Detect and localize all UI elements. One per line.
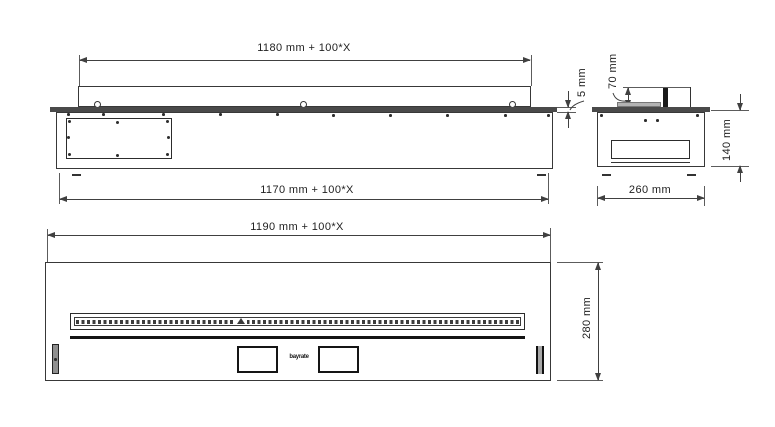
side-vent-right — [536, 346, 544, 374]
foot-mark — [687, 174, 696, 176]
burner-slot-perforation — [74, 317, 521, 326]
service-box-2 — [318, 346, 359, 373]
panel-screw — [166, 120, 169, 123]
dim-arrow-5mm-lower — [568, 112, 569, 128]
service-box-1 — [237, 346, 278, 373]
extension-line-70mm-top — [623, 87, 691, 88]
dim-line-280 — [598, 263, 599, 380]
center-notch-marker — [237, 318, 245, 324]
panel-screw — [116, 154, 119, 157]
front-edge-line — [70, 336, 525, 339]
end-opening — [611, 140, 690, 159]
extension-line-1180-right — [531, 55, 532, 86]
extension-line-140-bottom — [711, 166, 749, 167]
end-opening-lip — [611, 162, 690, 163]
burner-end-right-edge — [690, 87, 691, 107]
vent-stub — [663, 88, 668, 107]
screw-dot — [162, 113, 165, 116]
mounting-flange-end — [592, 107, 710, 112]
dim-arrow-5mm-upper — [568, 91, 569, 107]
screw-dot — [219, 113, 222, 116]
screw-dot — [67, 113, 70, 116]
screw-dot — [656, 119, 659, 122]
screw-dot — [547, 114, 550, 117]
screw-dot — [644, 119, 647, 122]
panel-screw — [68, 153, 71, 156]
foot-mark — [72, 174, 81, 176]
dim-label-70mm: 70 mm — [607, 48, 621, 94]
dim-label-140mm: 140 mm — [721, 116, 735, 164]
extension-line-140-top — [711, 110, 749, 111]
screw-dot — [332, 114, 335, 117]
foot-mark — [602, 174, 611, 176]
screw-dot — [276, 113, 279, 116]
panel-screw — [116, 121, 119, 124]
dim-label-5mm: 5 mm — [576, 60, 590, 104]
perforation-row — [76, 320, 519, 324]
dim-arrow-140-lower — [740, 166, 741, 182]
brand-logo: bayrate — [281, 352, 317, 363]
dim-label-260: 260 mm — [614, 184, 686, 196]
panel-screw — [167, 136, 170, 139]
dim-line-1190 — [48, 235, 550, 236]
dim-line-1170 — [60, 199, 548, 200]
panel-screw — [166, 153, 169, 156]
screw-dot — [389, 114, 392, 117]
dim-label-1190: 1190 mm + 100*X — [227, 221, 367, 233]
panel-screw — [68, 120, 71, 123]
dim-label-280mm: 280 mm — [581, 294, 595, 342]
screw-dot — [504, 114, 507, 117]
panel-screw — [67, 136, 70, 139]
dim-line-1180 — [80, 60, 530, 61]
mounting-flange-side — [50, 107, 557, 112]
corner-screw — [696, 114, 699, 117]
screw-dot — [446, 114, 449, 117]
dim-label-1170: 1170 mm + 100*X — [237, 184, 377, 196]
screw-dot — [102, 113, 105, 116]
dim-line-260 — [598, 198, 704, 199]
vent-screw — [54, 358, 57, 361]
foot-mark — [537, 174, 546, 176]
dim-label-1180: 1180 mm + 100*X — [234, 42, 374, 54]
dim-arrow-140-upper — [740, 94, 741, 110]
access-panel — [66, 118, 172, 159]
technical-drawing: 1180 mm + 100*X 1170 mm + 100*X 5 mm 70 … — [0, 0, 775, 427]
corner-screw — [600, 114, 603, 117]
